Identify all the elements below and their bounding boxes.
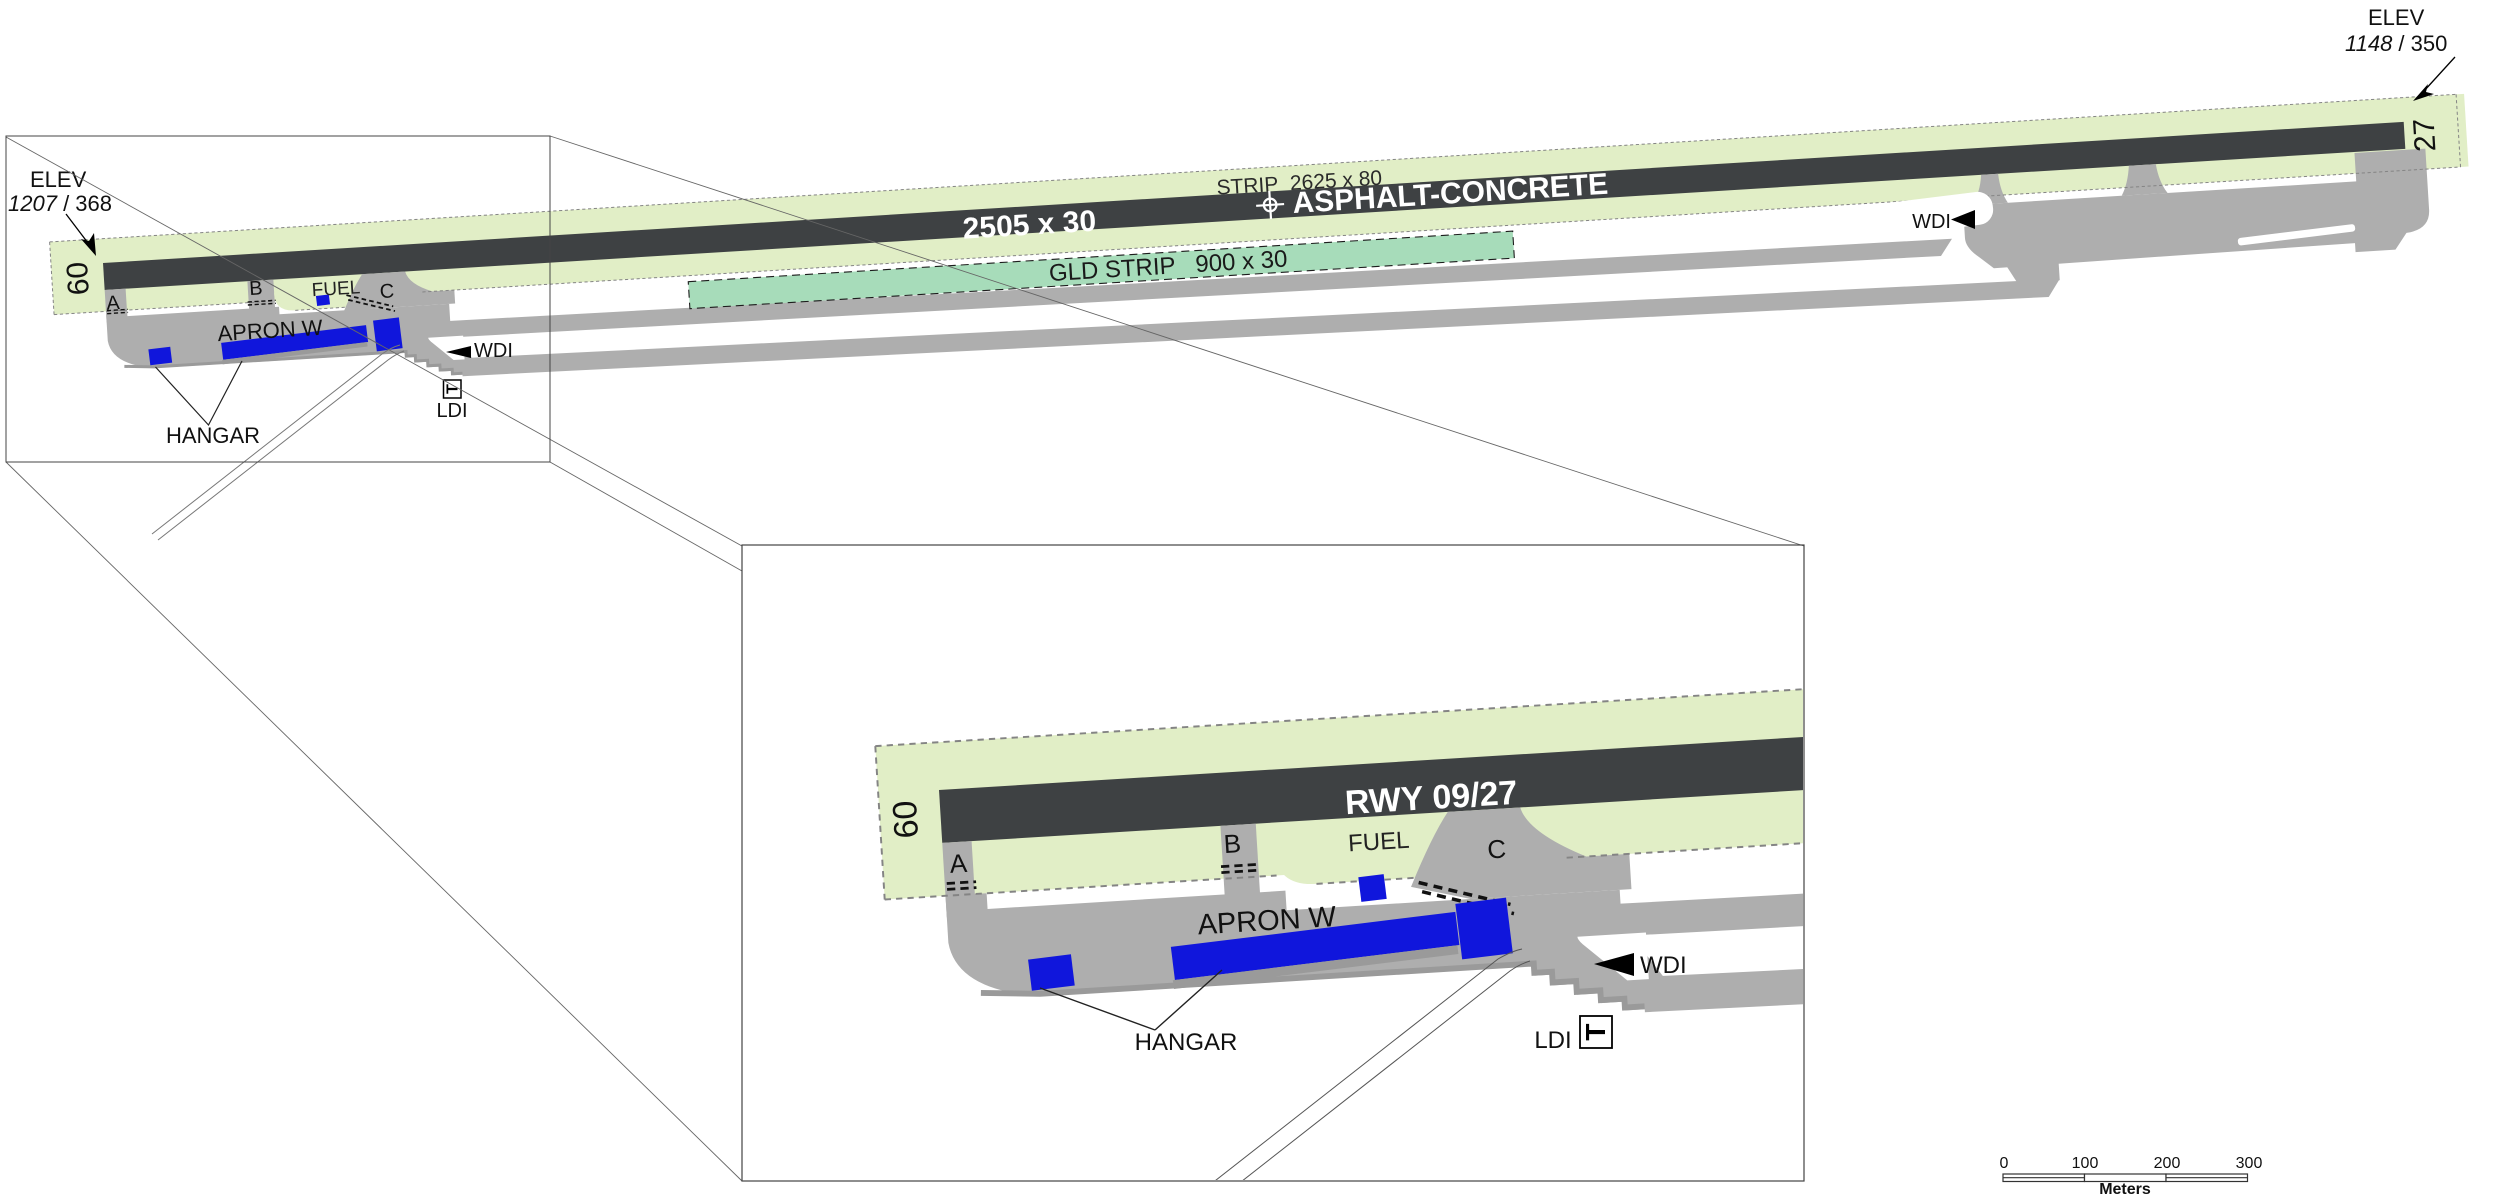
svg-text:200: 200 — [2154, 1155, 2181, 1172]
svg-text:300: 300 — [2236, 1155, 2263, 1172]
svg-text:60: 60 — [886, 800, 926, 840]
svg-text:1207 / 368: 1207 / 368 — [8, 191, 112, 216]
svg-text:LDI: LDI — [1534, 1027, 1571, 1054]
svg-text:A: A — [106, 292, 121, 315]
svg-text:FUEL: FUEL — [311, 277, 361, 301]
svg-text:60: 60 — [61, 261, 96, 296]
svg-text:T: T — [1580, 1023, 1611, 1040]
svg-text:ELEV: ELEV — [30, 167, 87, 192]
svg-text:100: 100 — [2072, 1155, 2099, 1172]
svg-text:WDI: WDI — [1640, 952, 1687, 979]
svg-text:C: C — [1486, 834, 1507, 865]
svg-text:HANGAR: HANGAR — [166, 423, 260, 448]
svg-text:A: A — [949, 848, 969, 879]
svg-text:Meters: Meters — [2099, 1181, 2151, 1195]
svg-text:WDI: WDI — [1912, 211, 1951, 233]
svg-text:LDI: LDI — [436, 400, 467, 422]
svg-text:B: B — [249, 277, 264, 300]
svg-text:ELEV: ELEV — [2368, 5, 2425, 30]
svg-text:FUEL: FUEL — [1347, 827, 1410, 858]
svg-text:C: C — [379, 280, 395, 303]
svg-text:0: 0 — [2000, 1155, 2009, 1172]
svg-text:B: B — [1223, 828, 1242, 859]
svg-text:27: 27 — [2408, 117, 2443, 152]
svg-text:1148 / 350: 1148 / 350 — [2345, 31, 2447, 56]
svg-text:WDI: WDI — [474, 340, 513, 362]
svg-text:HANGAR: HANGAR — [1135, 1029, 1238, 1056]
